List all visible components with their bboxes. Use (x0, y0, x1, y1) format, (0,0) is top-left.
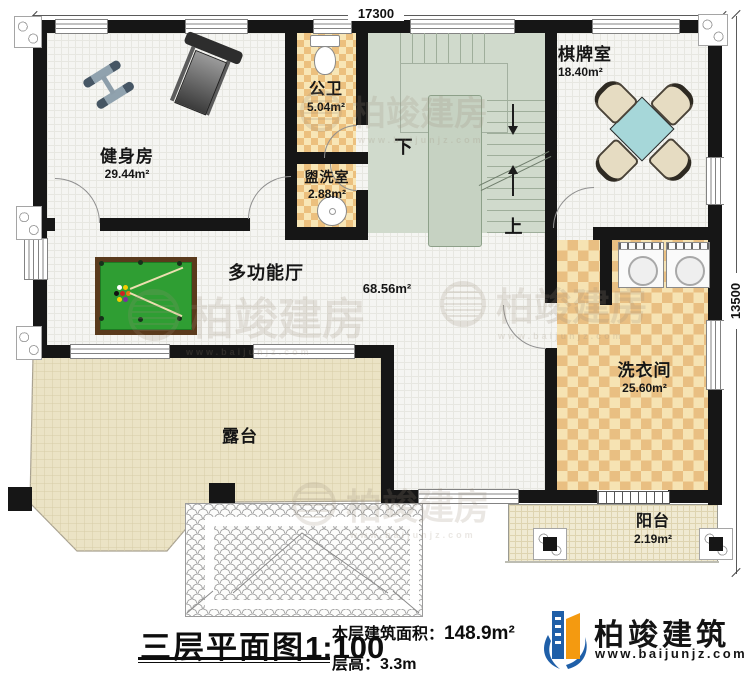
terrace-column (8, 487, 32, 511)
wall-chess-bottom (593, 227, 718, 240)
room-label-gym: 健身房 29.44m² (72, 146, 182, 182)
wall-laundry-left (545, 240, 557, 303)
window (313, 19, 352, 34)
floor-plan-canvas: 下 上 (0, 0, 750, 677)
toilet-icon (314, 46, 336, 75)
pocket-dot (138, 317, 143, 322)
floor-area-line: 本层建筑面积：148.9m² (332, 620, 515, 645)
pocket-dot (138, 260, 143, 265)
washer-controls (667, 243, 709, 250)
balcony-column-core (709, 537, 723, 551)
room-label-chess: 棋牌室 18.40m² (558, 44, 668, 80)
up-arrow-icon (512, 174, 514, 196)
company-website: www.baijunjz.com (595, 646, 747, 661)
balcony-column (699, 528, 733, 560)
corner-ornament (14, 16, 42, 48)
stair-treads-top (400, 33, 490, 63)
pocket-dot (99, 261, 104, 266)
balcony-column (533, 528, 567, 560)
window (55, 19, 108, 34)
window (418, 489, 519, 504)
billiard-ball (123, 297, 128, 302)
floor-area-value: 148.9m² (444, 623, 515, 644)
wall-hall-ext-bottom (381, 490, 418, 503)
dumbbell-bar (101, 75, 116, 95)
washing-machine-icon (666, 242, 710, 288)
billiard-ball (117, 297, 122, 302)
washer-controls (619, 243, 663, 250)
washer-drum (675, 256, 705, 286)
down-arrow-icon (508, 126, 518, 135)
room-area-hall: 68.56m² (352, 281, 422, 297)
roof-ridge-lines (185, 503, 421, 615)
window (706, 320, 724, 390)
billiard-table-icon (95, 257, 197, 335)
window (24, 238, 48, 280)
corner-ornament (16, 326, 42, 360)
sink-drain (329, 208, 336, 215)
billiard-ball (123, 285, 128, 290)
wall-chess-left (545, 33, 557, 240)
floor-area-label: 本层建筑面积： (332, 626, 444, 643)
room-label-washroom: 盥洗室 2.88m² (291, 169, 363, 202)
washing-machine-icon (618, 242, 664, 288)
corner-ornament (16, 206, 42, 240)
balcony-edge (505, 561, 719, 563)
up-arrow-icon (508, 165, 518, 174)
corner-ornament (698, 14, 728, 46)
room-label-terrace: 露台 (198, 426, 282, 447)
room-label-hall: 多功能厅 (206, 262, 326, 285)
wall-gym-bottom (47, 218, 55, 231)
wall-laundry-left (545, 348, 557, 493)
floor-height-line: 层高：3.3m (332, 650, 416, 674)
floor-height-label: 层高： (332, 656, 380, 673)
room-label-laundry: 洗衣间 25.60m² (592, 360, 697, 396)
pocket-dot (177, 261, 182, 266)
billiard-ball (114, 291, 119, 296)
wall-laundry-bottom (668, 490, 722, 503)
company-logo-icon (538, 605, 590, 671)
title-underline (138, 657, 330, 660)
washer-drum (628, 256, 658, 286)
wall-outer-right (708, 20, 722, 505)
wall-laundry-bottom (517, 490, 597, 503)
window (185, 19, 248, 34)
sliding-door (597, 491, 670, 504)
balcony-column-core (543, 537, 557, 551)
stair-down-label: 下 (390, 136, 418, 159)
window (592, 19, 680, 34)
wall-hall-terrace (168, 345, 253, 358)
wall-hall-ext-left (381, 345, 394, 503)
dimension-top-value: 17300 (348, 6, 404, 21)
room-label-public-bath: 公卫 5.04m² (288, 80, 364, 115)
pocket-dot (99, 316, 104, 321)
stair-landing (428, 95, 482, 247)
wall-laundry-stub (600, 240, 612, 305)
stair-up-label: 上 (500, 216, 528, 239)
window (706, 157, 724, 205)
down-arrow-icon (512, 104, 514, 126)
wall-gym-bottom (100, 218, 250, 231)
wall-bath-right (356, 157, 368, 164)
room-label-balcony: 阳台 2.19m² (608, 512, 698, 547)
wall-outer-left (33, 20, 47, 357)
floor-height-value: 3.3m (380, 656, 416, 673)
window (410, 19, 515, 34)
window (253, 344, 355, 359)
billiard-ball (117, 285, 122, 290)
dimension-right-value: 13500 (728, 273, 746, 329)
title-underline (138, 662, 330, 663)
window (70, 344, 170, 359)
billiard-ball (120, 291, 125, 296)
